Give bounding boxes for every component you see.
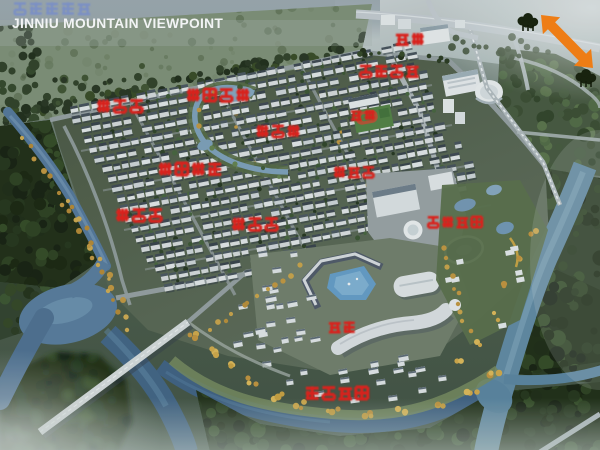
svg-text:JINNIU MOUNTAIN VIEWPOINT: JINNIU MOUNTAIN VIEWPOINT — [12, 16, 223, 31]
